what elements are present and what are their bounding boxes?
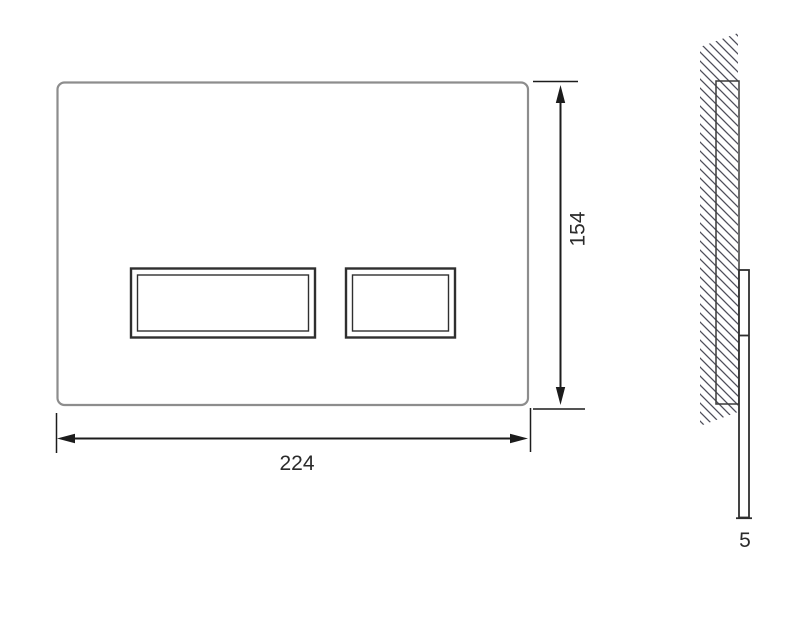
flush-plate-technical-drawing: 154 224 5 (0, 0, 800, 619)
width-dimension: 224 (57, 408, 531, 475)
arrow-up-icon (556, 85, 565, 103)
arrow-left-icon (57, 434, 75, 443)
side-view (700, 33, 752, 518)
plate-side-profile (739, 270, 749, 518)
large-flush-button (131, 269, 315, 338)
width-dimension-label: 224 (279, 452, 314, 475)
front-view (58, 83, 529, 406)
arrow-right-icon (510, 434, 528, 443)
wall-hatch-section (700, 33, 738, 426)
flush-plate-outline (58, 83, 529, 406)
thickness-dimension: 5 (739, 529, 751, 552)
thickness-dimension-label: 5 (739, 529, 751, 552)
arrow-down-icon (556, 387, 565, 405)
height-dimension-label: 154 (567, 211, 590, 246)
technical-drawing-canvas: 154 224 5 (0, 0, 800, 619)
height-dimension: 154 (533, 82, 590, 410)
small-flush-button (346, 269, 455, 338)
